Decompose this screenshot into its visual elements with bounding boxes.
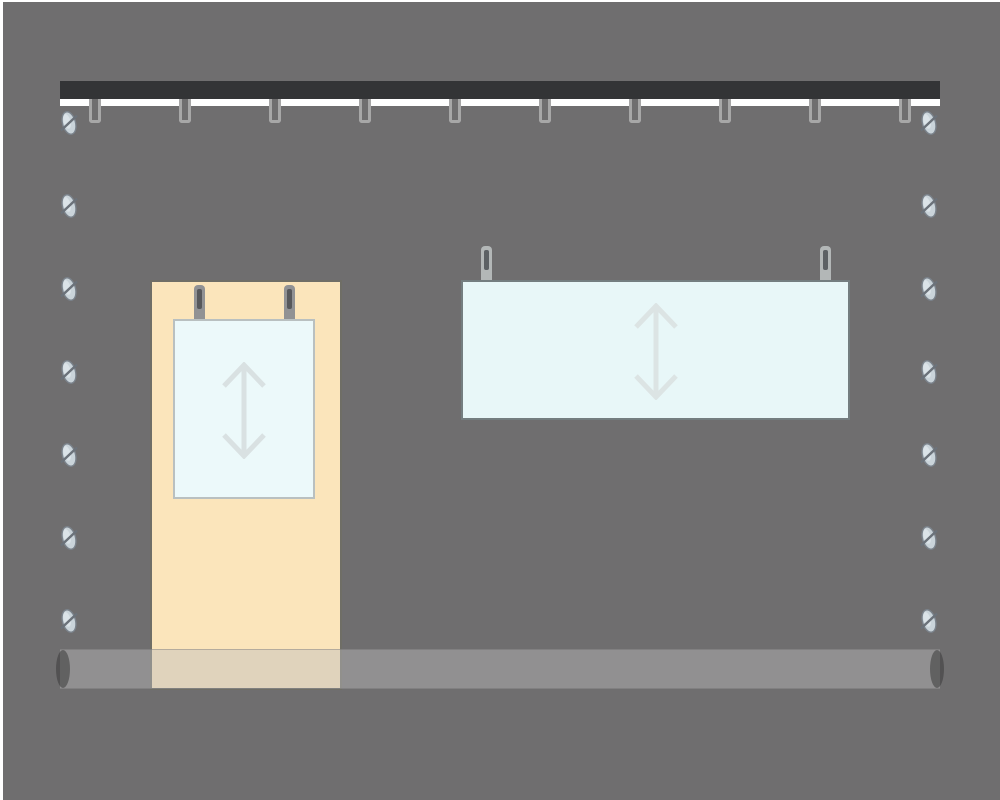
rail-hook-icon — [89, 99, 101, 123]
poster-clip-icon — [194, 285, 205, 319]
rail-hook-icon — [629, 99, 641, 123]
screw-icon — [918, 191, 940, 221]
screw-icon — [58, 606, 80, 636]
clip-slot — [197, 289, 202, 309]
clip-slot — [823, 250, 828, 270]
sign-clip-icon — [820, 246, 831, 280]
screw-icon — [918, 274, 940, 304]
screw-icon — [918, 440, 940, 470]
rail-hook-icon — [539, 99, 551, 123]
rail-hook-icon — [899, 99, 911, 123]
wall-panel — [3, 2, 1000, 800]
vertical-double-arrow-icon — [633, 303, 679, 400]
rod-end-cap — [56, 650, 70, 688]
screw-icon — [58, 191, 80, 221]
rail-hook-icon — [179, 99, 191, 123]
sign-clip-icon — [481, 246, 492, 280]
rail-hook-icon — [269, 99, 281, 123]
rail-strip — [60, 99, 940, 106]
rod-end-cap — [930, 650, 944, 688]
rail-bar — [60, 81, 940, 99]
screw-icon — [58, 108, 80, 138]
screw-icon — [58, 357, 80, 387]
rail-hook-icon — [809, 99, 821, 123]
screw-icon — [918, 606, 940, 636]
screw-icon — [918, 108, 940, 138]
rail-hook-icon — [449, 99, 461, 123]
rod-body — [60, 649, 940, 689]
poster-clip-icon — [284, 285, 295, 319]
clip-slot — [287, 289, 292, 309]
screw-icon — [58, 274, 80, 304]
vertical-double-arrow-icon — [221, 362, 267, 459]
screw-icon — [58, 523, 80, 553]
rail-hook-icon — [359, 99, 371, 123]
screw-icon — [918, 523, 940, 553]
clip-slot — [484, 250, 489, 270]
rail-hook-icon — [719, 99, 731, 123]
screw-icon — [918, 357, 940, 387]
screw-icon — [58, 440, 80, 470]
